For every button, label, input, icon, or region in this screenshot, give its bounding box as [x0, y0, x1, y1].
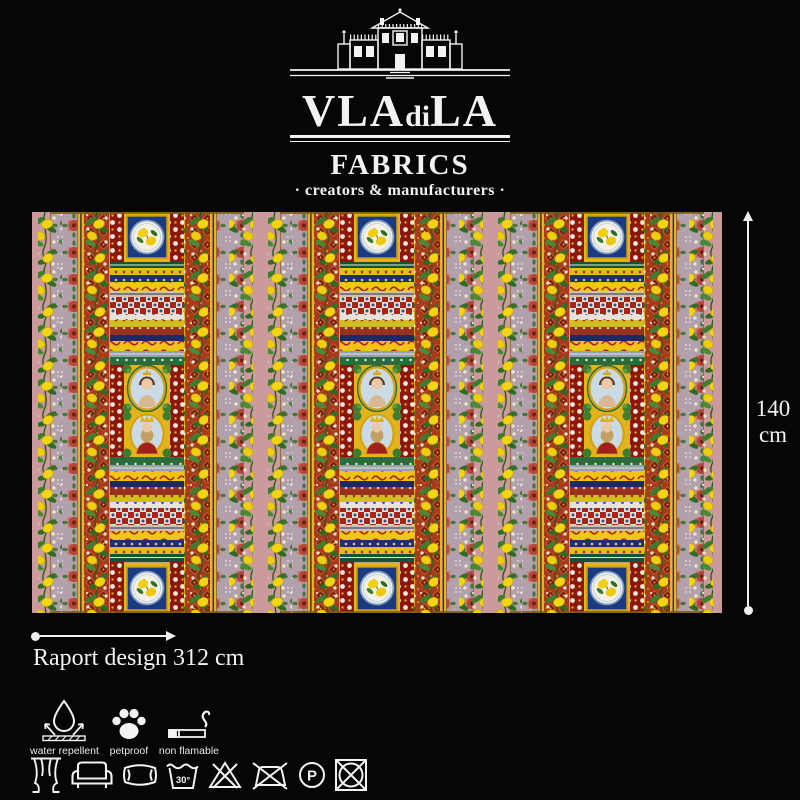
feature-water-repellent: water repellent	[30, 698, 99, 757]
paw-icon	[109, 704, 149, 742]
wash-tub-icon: 30°	[165, 759, 201, 791]
product-sheet: VLAdiLA FABRICS · creators & manufacture…	[0, 0, 800, 800]
wash-temperature: 30°	[176, 775, 191, 786]
water-repellent-icon	[40, 698, 88, 742]
fabric-pattern	[32, 212, 722, 613]
height-value: 140	[750, 396, 796, 422]
care-symbol-row: 30° P	[30, 756, 369, 794]
height-unit: cm	[750, 422, 796, 448]
brand-name: VLAdiLA	[270, 87, 530, 135]
height-measure-dot	[744, 606, 753, 615]
crossed-triangle-icon	[208, 759, 242, 791]
brand-part-vla: VLA	[302, 85, 405, 136]
crossed-square-circle-icon	[333, 757, 369, 793]
curtains-icon	[30, 756, 62, 794]
pillow-icon	[122, 761, 158, 789]
feature-list: water repellent petproof non flamable	[30, 698, 219, 757]
brand-tagline: · creators & manufacturers ·	[270, 182, 530, 200]
height-label: 140 cm	[750, 396, 796, 449]
height-measure-line	[747, 220, 749, 606]
brand-logo: VLAdiLA FABRICS · creators & manufacture…	[270, 6, 530, 200]
feature-petproof: petproof	[109, 704, 149, 757]
feature-non-flamable: non flamable	[159, 704, 219, 757]
villa-mansion-icon	[290, 6, 510, 80]
fabric-swatch	[32, 212, 722, 613]
raport-measure-line	[40, 635, 166, 637]
raport-measure-dot	[31, 632, 40, 641]
circle-p-icon: P	[298, 761, 326, 789]
sofa-icon	[69, 757, 115, 793]
brand-part-di: di	[405, 100, 430, 133]
dry-clean-letter: P	[307, 768, 317, 785]
raport-label: Raport design 312 cm	[33, 645, 244, 672]
crossed-iron-icon	[249, 758, 291, 792]
cigarette-icon	[166, 704, 212, 742]
raport-arrow-right	[166, 631, 176, 641]
division-title: FABRICS	[270, 151, 530, 180]
brand-part-la: LA	[430, 85, 498, 136]
divider-line	[290, 141, 510, 142]
